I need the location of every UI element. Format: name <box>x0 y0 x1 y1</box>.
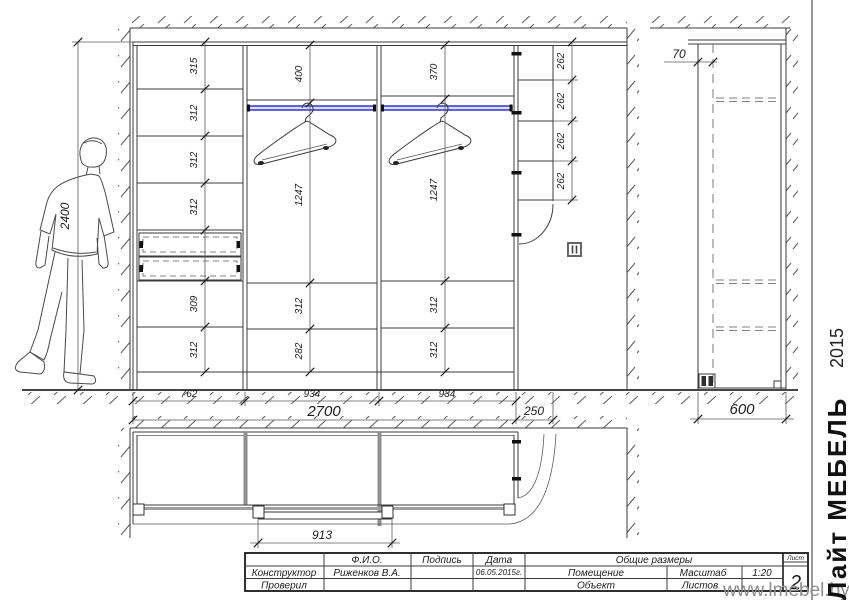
titleblock-object-label: Объект <box>577 580 615 592</box>
wall-hatch <box>786 28 798 390</box>
dim-label: 934 <box>304 389 321 400</box>
side-dimensions: 70 600 <box>664 47 794 424</box>
titleblock-designer-name: Риженков В.А. <box>333 568 400 579</box>
side-view: 70 600 <box>650 16 798 424</box>
dim-label: 400 <box>294 65 305 82</box>
titleblock-sheets-label: Листов <box>681 581 718 592</box>
dim-label: 312 <box>294 297 305 314</box>
door-roller <box>133 504 144 515</box>
dim-label: 262 <box>556 92 567 110</box>
adjustable-foot <box>699 374 781 388</box>
ceiling-hatch <box>650 16 790 28</box>
left-wall-hatch <box>118 28 130 390</box>
titleblock-room-label: Помещение <box>568 568 624 579</box>
drawer-box <box>139 257 241 280</box>
dim-label: 312 <box>189 151 200 168</box>
cad-drawing: 2400 315 312 312 312 309 312 400 1247 31… <box>0 0 849 600</box>
dim-label: 913 <box>312 528 332 542</box>
dim-label: 762 <box>181 389 198 400</box>
dim-label: 600 <box>729 401 755 418</box>
titleblock-date-header: Дата <box>485 555 513 566</box>
ceiling-hatch <box>132 16 627 28</box>
dim-label: 1247 <box>294 183 305 206</box>
brand-company: Лайт МЕБЕЛЬ <box>822 397 849 600</box>
dim-label: 282 <box>294 342 305 360</box>
human-figure <box>15 138 114 384</box>
titleblock-scale-label: Масштаб <box>680 567 727 579</box>
right-wall-hatch <box>627 28 639 390</box>
titleblock-date-value: 06.05.2015г. <box>476 568 522 577</box>
dim-label: 1247 <box>429 178 440 201</box>
dim-label: 262 <box>556 132 567 150</box>
curved-side-panel <box>519 204 553 244</box>
branding-vertical: Лайт МЕБЕЛЬ 2015 <box>822 328 849 600</box>
left-wall-hatch <box>118 428 130 538</box>
wall-hatch <box>130 416 627 428</box>
dim-label: 312 <box>429 341 440 358</box>
drawing-sheet: 2400 315 312 312 312 309 312 400 1247 31… <box>0 0 849 600</box>
room-walls <box>22 16 798 404</box>
drawer-box <box>139 233 241 256</box>
titleblock-designer-label: Конструктор <box>252 568 317 579</box>
titleblock-checked-label: Проверил <box>261 581 307 592</box>
floor-hatch <box>26 392 795 404</box>
titleblock-signature-header: Подпись <box>422 555 462 566</box>
dim-label: 312 <box>189 104 200 121</box>
dim-label: 262 <box>556 172 567 190</box>
dim-label: 250 <box>523 404 544 418</box>
dim-label: 312 <box>429 296 440 313</box>
titleblock-scale-value: 1:20 <box>752 568 772 579</box>
dim-label: 312 <box>189 198 200 215</box>
titleblock-summary-header: Общие размеры <box>616 554 693 566</box>
titleblock-fio-header: Ф.И.О. <box>351 555 382 566</box>
hanging-rod <box>249 106 375 110</box>
plan-view: 913 <box>118 416 639 548</box>
sliding-door <box>258 512 392 519</box>
front-view: 2400 315 312 312 312 309 312 400 1247 31… <box>15 16 798 424</box>
right-wall-hatch <box>627 428 639 538</box>
wardrobe-plan <box>133 432 556 526</box>
door-roller <box>382 506 393 518</box>
dim-label: 309 <box>189 295 200 312</box>
dim-label: 70 <box>672 47 686 61</box>
door-roller <box>504 504 515 515</box>
corner-inner-curve <box>518 434 544 498</box>
dim-label: 370 <box>429 63 440 80</box>
dim-label: 2400 <box>58 202 72 230</box>
hidden-shelf-lines <box>716 98 779 331</box>
titleblock-sheet-label: Лист <box>786 555 804 562</box>
socket-icon <box>568 243 581 256</box>
corner-outer-curve <box>133 434 556 524</box>
dim-label: 315 <box>189 57 200 74</box>
dim-label: 934 <box>439 389 456 400</box>
dim-label: 312 <box>189 341 200 358</box>
brand-year: 2015 <box>827 328 847 368</box>
dim-label: 262 <box>556 52 567 70</box>
door-roller <box>253 506 264 518</box>
